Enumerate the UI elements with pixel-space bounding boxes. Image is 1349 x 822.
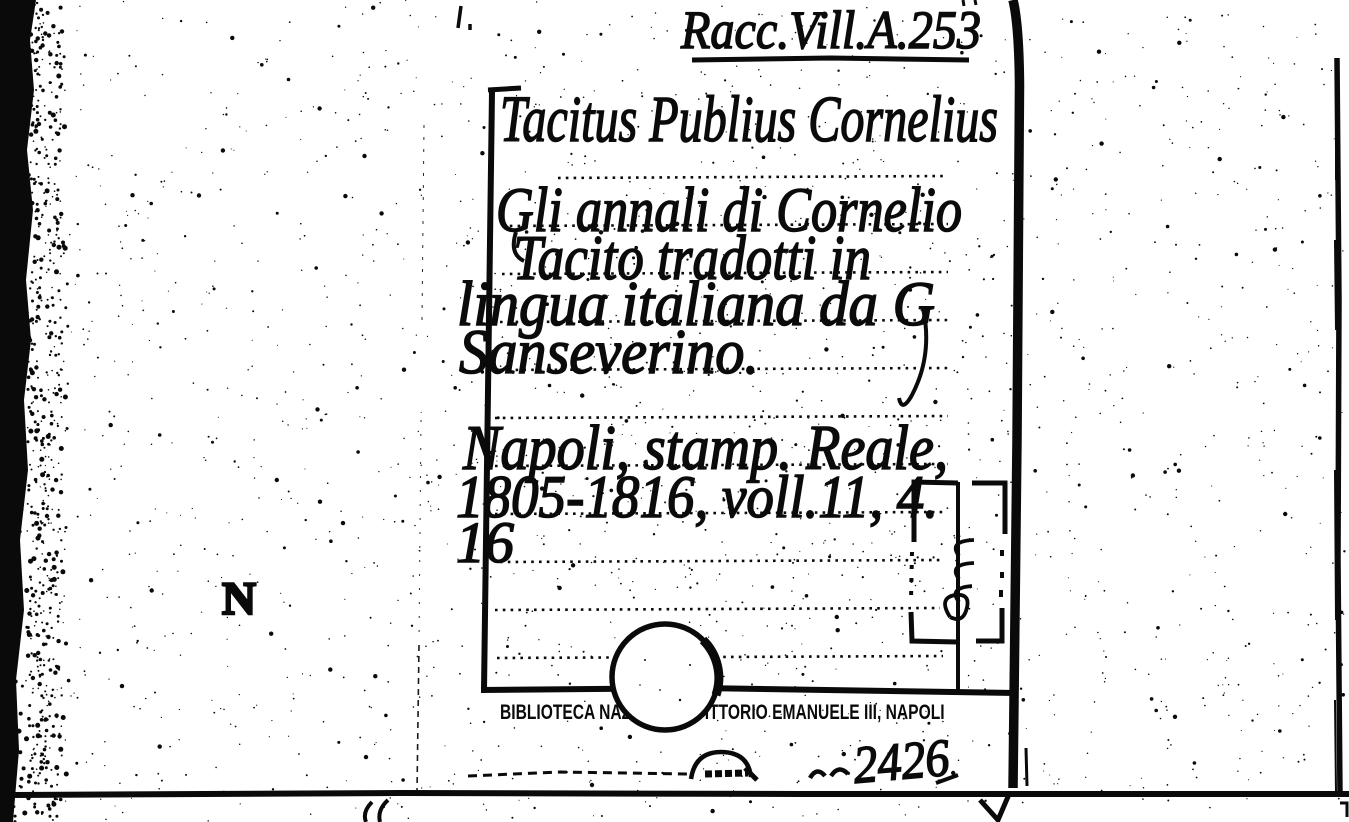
svg-text:Racc.Vill.A.253: Racc.Vill.A.253 <box>680 0 981 60</box>
svg-text:16: 16 <box>456 510 514 575</box>
svg-text:Tacitus Publius Cornelius: Tacitus Publius Cornelius <box>500 83 998 156</box>
svg-text:N: N <box>222 573 256 625</box>
svg-text:Sanseverino.: Sanseverino. <box>459 317 759 387</box>
svg-text:2426: 2426 <box>851 729 952 795</box>
svg-text:1805-1816, voll.11, 4.: 1805-1816, voll.11, 4. <box>456 464 938 530</box>
svg-text:BIBLIOTECA NAZIONALE VITTORIO: BIBLIOTECA NAZIONALE VITTORIO EMANUELE I… <box>500 700 945 723</box>
